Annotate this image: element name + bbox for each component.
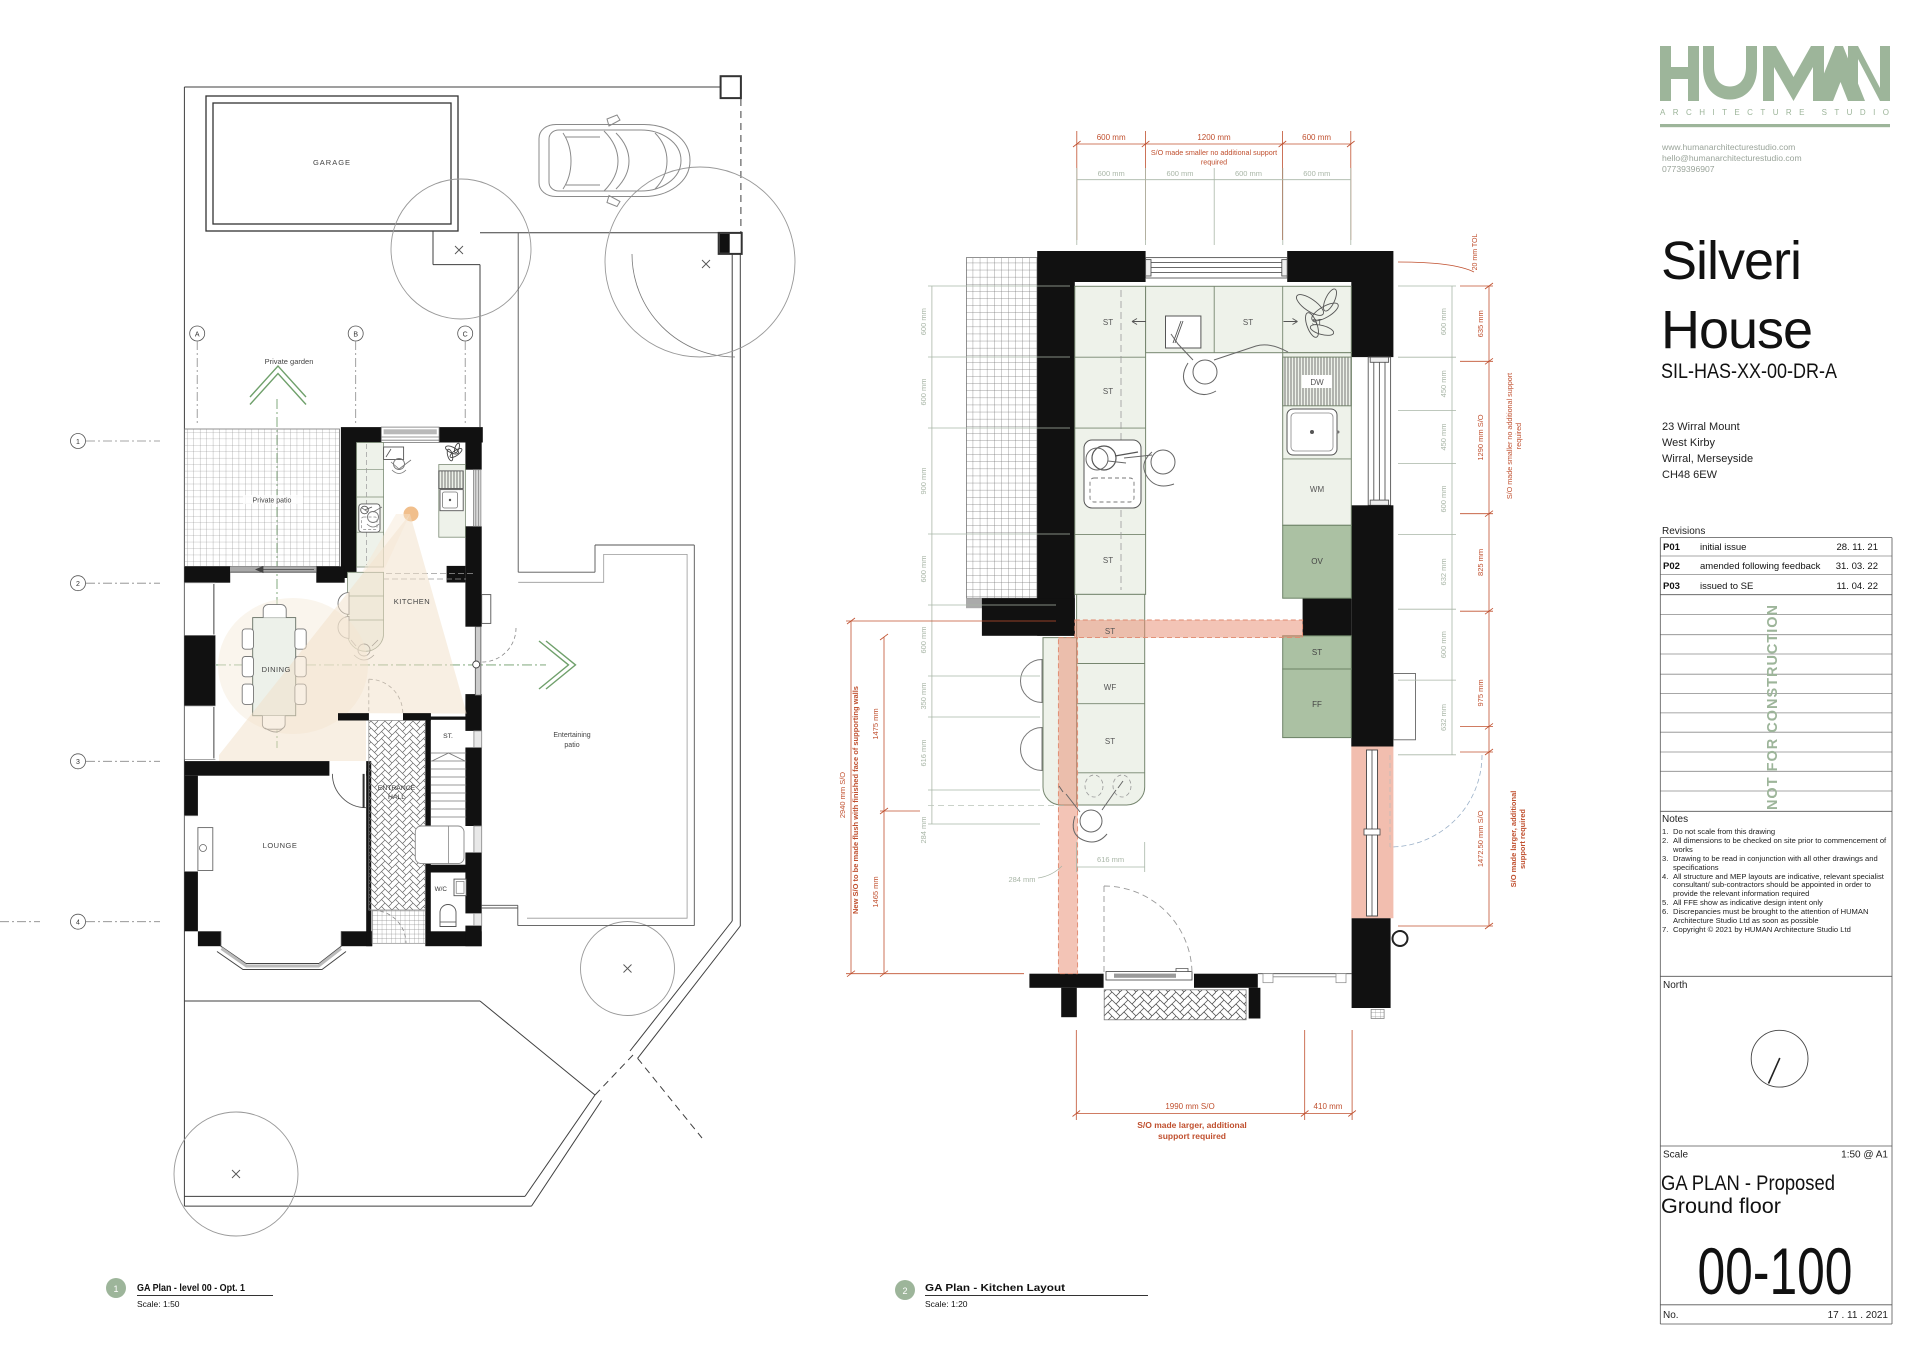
- svg-text:B: B: [353, 331, 358, 338]
- svg-text:FF: FF: [1312, 700, 1322, 709]
- svg-text:2940 mm S/O: 2940 mm S/O: [838, 772, 847, 818]
- svg-text:GARAGE: GARAGE: [313, 158, 351, 167]
- svg-text:600 mm: 600 mm: [1303, 169, 1330, 178]
- svg-text:284 mm: 284 mm: [1008, 875, 1035, 884]
- svg-text:1:50 @ A1: 1:50 @ A1: [1841, 1150, 1888, 1161]
- svg-text:07739396907: 07739396907: [1662, 164, 1715, 174]
- svg-text:initial issue: initial issue: [1700, 542, 1746, 553]
- svg-text:West Kirby: West Kirby: [1662, 437, 1715, 449]
- svg-text:1990 mm S/O: 1990 mm S/O: [1165, 1102, 1214, 1111]
- svg-text:616 mm: 616 mm: [919, 739, 928, 766]
- svg-text:required: required: [1514, 423, 1523, 449]
- svg-text:P02: P02: [1663, 561, 1680, 572]
- svg-text:OV: OV: [1311, 557, 1323, 566]
- svg-text:632 mm: 632 mm: [1439, 558, 1448, 585]
- svg-text:17 . 11 . 2021: 17 . 11 . 2021: [1828, 1310, 1889, 1321]
- svg-text:2: 2: [76, 581, 80, 588]
- svg-text:825 mm: 825 mm: [1476, 549, 1485, 576]
- svg-text:DINING: DINING: [262, 665, 291, 674]
- svg-text:W/C: W/C: [435, 886, 448, 893]
- svg-text:support required: support required: [1518, 809, 1527, 869]
- svg-text:A: A: [195, 331, 200, 338]
- svg-text:S/O made larger, additional: S/O made larger, additional: [1509, 791, 1518, 888]
- svg-text:Scale: Scale: [1663, 1150, 1688, 1161]
- svg-text:635 mm: 635 mm: [1476, 310, 1485, 337]
- svg-text:Private patio: Private patio: [253, 498, 292, 505]
- svg-text:S/O made smaller no additional: S/O made smaller no additional support: [1505, 373, 1514, 499]
- svg-text:1: 1: [113, 1284, 118, 1294]
- svg-text:1475 mm: 1475 mm: [871, 708, 880, 739]
- svg-text:11. 04. 22: 11. 04. 22: [1836, 581, 1878, 592]
- svg-text:1200 mm: 1200 mm: [1197, 133, 1231, 142]
- svg-text:600 mm: 600 mm: [1235, 169, 1262, 178]
- svg-text:ST.: ST.: [443, 733, 453, 740]
- svg-text:600 mm: 600 mm: [919, 378, 928, 405]
- svg-text:600 mm: 600 mm: [1097, 133, 1126, 142]
- svg-text:3: 3: [76, 759, 80, 766]
- svg-text:ST: ST: [1103, 556, 1113, 565]
- svg-text:31. 03. 22: 31. 03. 22: [1836, 561, 1878, 572]
- svg-text:S/O made smaller no additional: S/O made smaller no additional support: [1151, 148, 1277, 157]
- svg-text:632 mm: 632 mm: [1439, 704, 1448, 731]
- svg-text:GA Plan - level 00 - Opt. 1: GA Plan - level 00 - Opt. 1: [137, 1282, 245, 1294]
- svg-text:20 mm TOL: 20 mm TOL: [1472, 234, 1479, 271]
- svg-text:Ground floor: Ground floor: [1661, 1194, 1781, 1218]
- svg-text:GA Plan - Kitchen Layout: GA Plan - Kitchen Layout: [925, 1282, 1066, 1294]
- svg-text:600 mm: 600 mm: [1302, 133, 1331, 142]
- svg-text:616 mm: 616 mm: [1097, 855, 1124, 864]
- svg-text:ENTRANCE: ENTRANCE: [378, 785, 416, 792]
- svg-text:600 mm: 600 mm: [1439, 485, 1448, 512]
- svg-text:P03: P03: [1663, 581, 1680, 592]
- svg-text:450 mm: 450 mm: [1439, 370, 1448, 397]
- svg-text:1290 mm S/O: 1290 mm S/O: [1476, 414, 1485, 460]
- svg-text:New S/O to be made flush with: New S/O to be made flush with finished f…: [851, 686, 860, 914]
- svg-text:North: North: [1663, 980, 1687, 991]
- svg-text:KITCHEN: KITCHEN: [394, 597, 430, 606]
- svg-text:Wirral, Merseyside: Wirral, Merseyside: [1662, 453, 1753, 465]
- svg-text:2: 2: [902, 1286, 907, 1296]
- svg-text:00-100: 00-100: [1698, 1234, 1853, 1308]
- svg-text:ST: ST: [1243, 318, 1253, 327]
- svg-text:Revisions: Revisions: [1662, 526, 1705, 537]
- svg-text:Notes: Notes: [1662, 814, 1688, 825]
- svg-text:ST: ST: [1312, 648, 1322, 657]
- svg-text:600 mm: 600 mm: [919, 626, 928, 653]
- svg-text:900 mm: 900 mm: [919, 467, 928, 494]
- svg-text:S/O made larger, additional: S/O made larger, additional: [1137, 1120, 1247, 1130]
- svg-text:600 mm: 600 mm: [1166, 169, 1193, 178]
- svg-text:600 mm: 600 mm: [1439, 631, 1448, 658]
- svg-text:Private garden: Private garden: [265, 357, 314, 366]
- svg-text:975 mm: 975 mm: [1476, 679, 1485, 706]
- svg-text:1: 1: [76, 439, 80, 446]
- svg-text:Silveri: Silveri: [1661, 231, 1801, 291]
- svg-text:450 mm: 450 mm: [1439, 423, 1448, 450]
- svg-text:1472.50 mm S/O: 1472.50 mm S/O: [1476, 810, 1485, 867]
- svg-text:Scale: 1:50: Scale: 1:50: [137, 1299, 180, 1309]
- svg-text:issued to SE: issued to SE: [1700, 581, 1753, 592]
- svg-text:Entertaining: Entertaining: [553, 732, 590, 739]
- svg-text:600 mm: 600 mm: [1439, 308, 1448, 335]
- svg-text:28. 11. 21: 28. 11. 21: [1836, 542, 1878, 553]
- svg-text:hello@humanarchitecturestudio.: hello@humanarchitecturestudio.com: [1662, 153, 1802, 163]
- svg-text:284 mm: 284 mm: [919, 816, 928, 843]
- svg-text:ST: ST: [1105, 627, 1115, 636]
- svg-text:ST: ST: [1103, 387, 1113, 396]
- svg-text:350 mm: 350 mm: [919, 682, 928, 709]
- svg-text:HALL: HALL: [388, 794, 405, 801]
- svg-text:1465 mm: 1465 mm: [871, 876, 880, 907]
- svg-text:ST: ST: [1103, 318, 1113, 327]
- svg-text:23 Wirral Mount: 23 Wirral Mount: [1662, 421, 1740, 433]
- svg-text:LOUNGE: LOUNGE: [263, 841, 298, 850]
- svg-text:P01: P01: [1663, 542, 1681, 553]
- svg-text:patio: patio: [564, 742, 579, 749]
- svg-text:www.humanarchitecturestudio.co: www.humanarchitecturestudio.com: [1661, 142, 1795, 152]
- svg-text:No.: No.: [1663, 1310, 1679, 1321]
- svg-text:4: 4: [76, 920, 80, 927]
- svg-text:410 mm: 410 mm: [1314, 1102, 1343, 1111]
- svg-text:600 mm: 600 mm: [919, 308, 928, 335]
- svg-text:WM: WM: [1310, 485, 1325, 494]
- svg-text:DW: DW: [1310, 378, 1324, 387]
- svg-text:600 mm: 600 mm: [919, 555, 928, 582]
- svg-text:WF: WF: [1104, 683, 1117, 692]
- svg-text:600 mm: 600 mm: [1098, 169, 1125, 178]
- svg-text:ARCHITECTURE STUDIO: ARCHITECTURE STUDIO: [1660, 108, 1889, 117]
- svg-text:C: C: [463, 331, 468, 338]
- svg-text:Scale: 1:20: Scale: 1:20: [925, 1299, 968, 1309]
- svg-text:SIL-HAS-XX-00-DR-A: SIL-HAS-XX-00-DR-A: [1661, 359, 1838, 383]
- svg-text:GA PLAN - Proposed: GA PLAN - Proposed: [1661, 1171, 1835, 1195]
- svg-text:amended following feedback: amended following feedback: [1700, 561, 1821, 572]
- svg-text:ST: ST: [1105, 737, 1115, 746]
- svg-text:required: required: [1201, 158, 1227, 167]
- svg-text:CH48 6EW: CH48 6EW: [1662, 469, 1718, 481]
- svg-text:House: House: [1661, 300, 1812, 360]
- svg-text:NOT FOR CONSTRUCTION: NOT FOR CONSTRUCTION: [1765, 604, 1781, 810]
- svg-text:support required: support required: [1158, 1131, 1226, 1141]
